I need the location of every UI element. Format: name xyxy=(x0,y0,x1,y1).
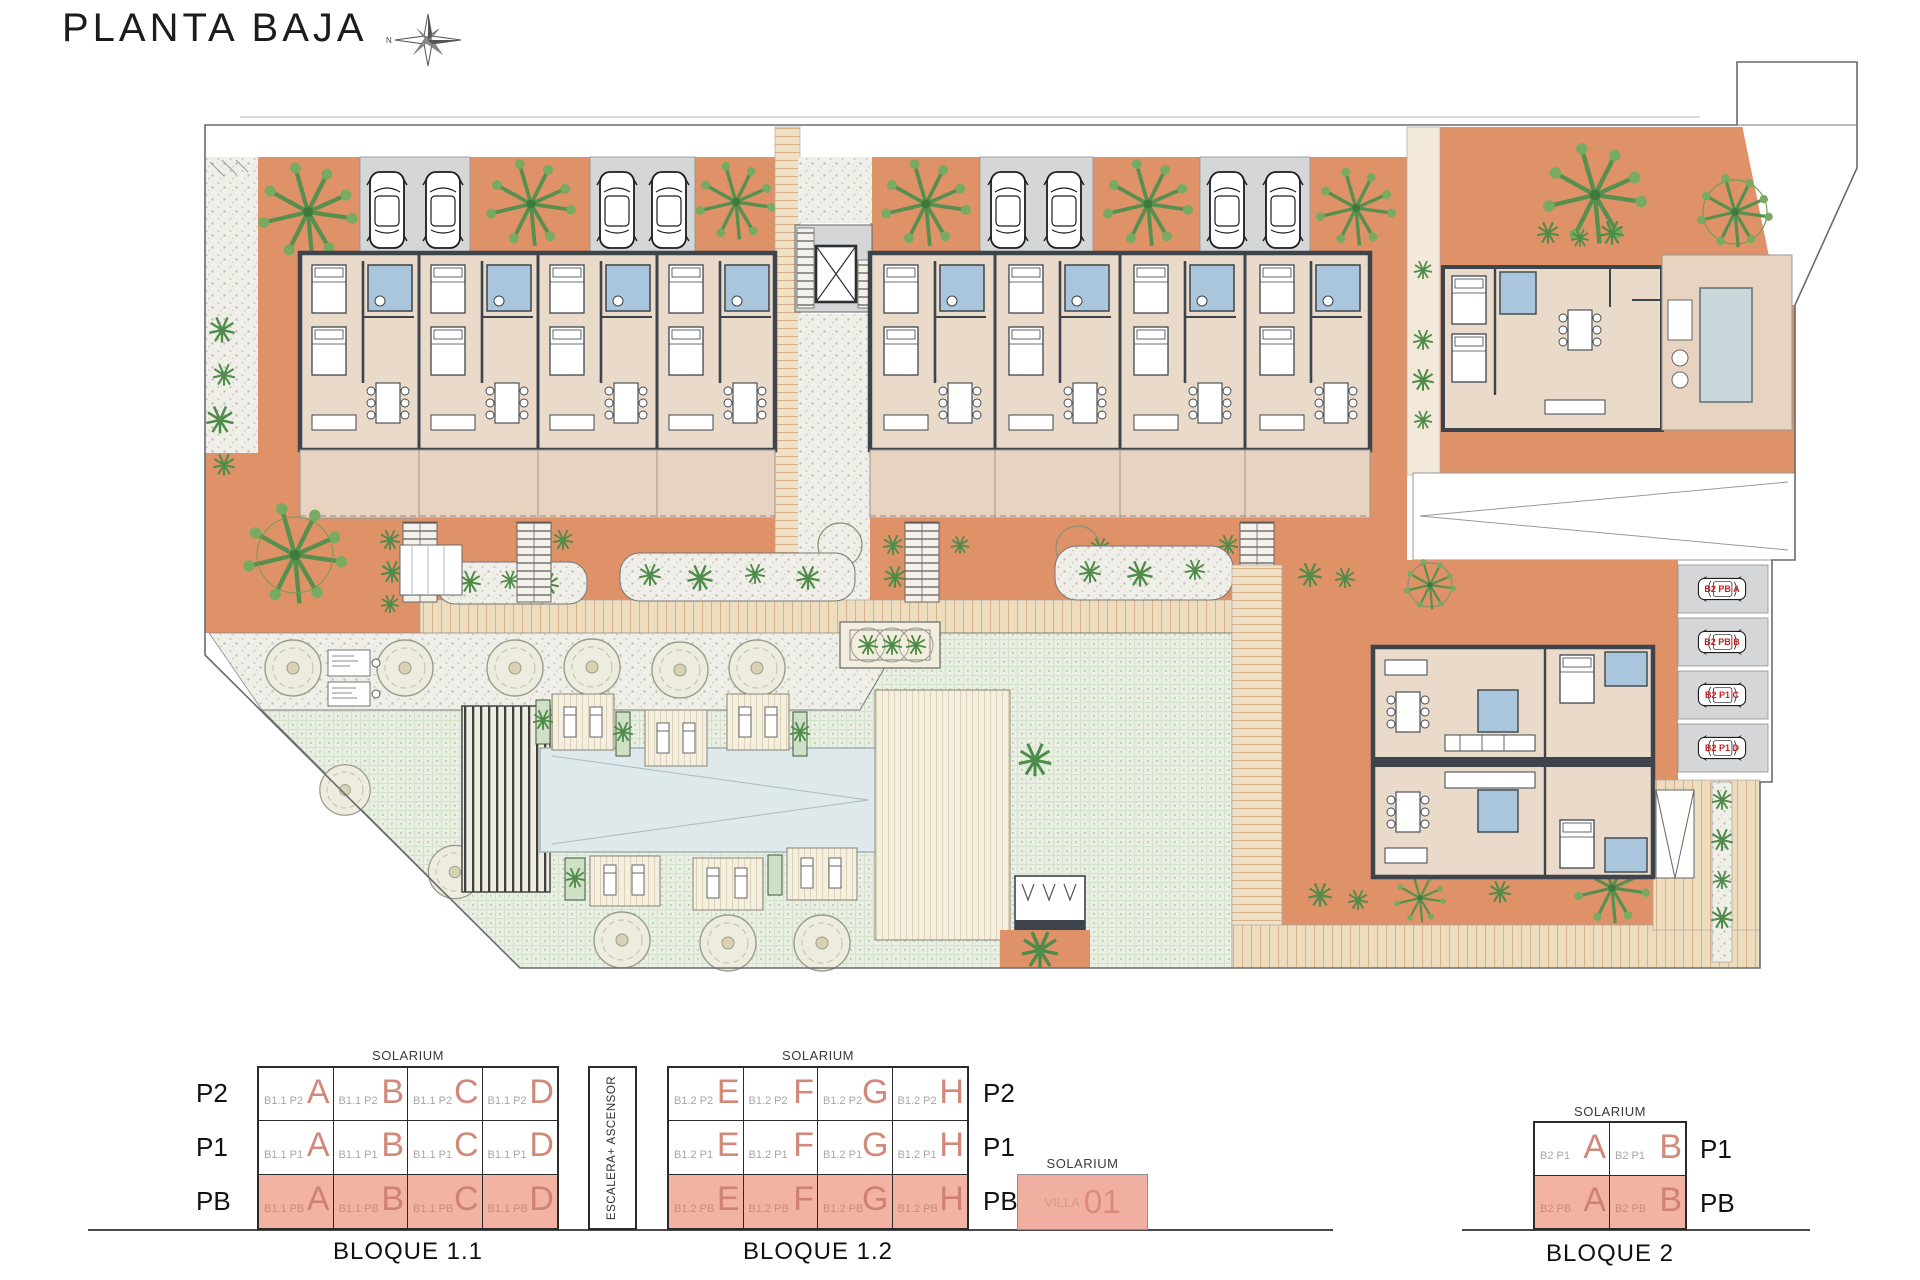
unit-cell-highlighted[interactable]: B2 PBA xyxy=(1535,1176,1610,1229)
bloque-2-unit-table: B2 P1A B2 P1B B2 PBA B2 PBB xyxy=(1533,1121,1687,1230)
floor-label-b2-pb: PB xyxy=(1700,1188,1735,1219)
unit-cell[interactable]: B1.2 P1F xyxy=(744,1121,819,1174)
unit-cell-highlighted[interactable]: B1.1 PBB xyxy=(334,1175,409,1228)
bloque-1-2-building xyxy=(870,253,1370,518)
villa-01-cell[interactable]: VILLA 01 xyxy=(1017,1174,1148,1230)
unit-cell[interactable]: B2 P1B xyxy=(1610,1123,1685,1176)
unit-cell[interactable]: B1.2 P2F xyxy=(744,1068,819,1121)
unit-cell-highlighted[interactable]: B1.2 PBH xyxy=(893,1175,967,1228)
pool-wc-hut xyxy=(1015,876,1085,938)
private-pool xyxy=(1700,288,1752,402)
unit-cell[interactable]: B1.1 P1C xyxy=(408,1121,483,1174)
solarium-label-b12: SOLARIUM xyxy=(667,1048,969,1063)
unit-cell[interactable]: B1.1 P1A xyxy=(259,1121,334,1174)
unit-cell[interactable]: B1.2 P2H xyxy=(893,1068,967,1121)
bloque-1-1-label: BLOQUE 1.1 xyxy=(257,1238,559,1266)
fountain-planter xyxy=(840,622,940,668)
floor-label-b11-p1: P1 xyxy=(196,1132,228,1163)
villa-number: 01 xyxy=(1084,1183,1121,1221)
pool xyxy=(540,748,895,852)
bloque-1-2-unit-table: B1.2 P2E B1.2 P2F B1.2 P2G B1.2 P2H B1.2… xyxy=(667,1066,969,1230)
floor-label-b12-p1: P1 xyxy=(983,1132,1015,1163)
stairs-elevator-box: ESCALERA+ ASCENSOR xyxy=(588,1066,637,1230)
floor-label-b12-p2: P2 xyxy=(983,1078,1015,1109)
page-title: PLANTA BAJA xyxy=(62,6,368,51)
parking-label: B2 P1 C xyxy=(1705,690,1740,700)
unit-cell-highlighted[interactable]: B1.1 PBD xyxy=(483,1175,557,1228)
unit-cell-highlighted[interactable]: B2 PBB xyxy=(1610,1176,1685,1229)
bloque-2-zone xyxy=(1407,62,1857,560)
unit-cell[interactable]: B1.1 P2A xyxy=(259,1068,334,1121)
unit-cell[interactable]: B1.2 P1H xyxy=(893,1121,967,1174)
parking-label: B2 PB B xyxy=(1704,637,1740,647)
compass-icon: N xyxy=(378,6,468,72)
driveway xyxy=(1413,473,1795,560)
unit-cell[interactable]: B1.1 P2B xyxy=(334,1068,409,1121)
floor-plan-page: B2 PB A B2 PB B B2 P1 C B2 P1 D PLANTA B… xyxy=(0,0,1920,1280)
unit-cell-highlighted[interactable]: B1.2 PBF xyxy=(744,1175,819,1228)
unit-cell[interactable]: B1.1 P1B xyxy=(334,1121,409,1174)
elevator-icon xyxy=(816,246,856,302)
svg-text:N: N xyxy=(386,36,392,45)
unit-cell[interactable]: B1.2 P1E xyxy=(669,1121,744,1174)
unit-cell[interactable]: B1.1 P2D xyxy=(483,1068,557,1121)
unit-cell-highlighted[interactable]: B1.2 PBG xyxy=(818,1175,893,1228)
villa-building xyxy=(1373,647,1653,877)
solarium-label-villa: SOLARIUM xyxy=(1017,1156,1148,1171)
unit-cell[interactable]: B1.1 P1D xyxy=(483,1121,557,1174)
floor-label-b12-pb: PB xyxy=(983,1186,1018,1217)
solarium-label-b2: SOLARIUM xyxy=(1533,1104,1687,1119)
bloque-1-1-unit-table: B1.1 P2A B1.1 P2B B1.1 P2C B1.1 P2D B1.1… xyxy=(257,1066,559,1230)
stairs-elevator-label: ESCALERA+ ASCENSOR xyxy=(607,1076,619,1220)
villa-code: VILLA xyxy=(1044,1195,1079,1210)
unit-cell-highlighted[interactable]: B1.1 PBC xyxy=(408,1175,483,1228)
floor-label-b11-pb: PB xyxy=(196,1186,231,1217)
bloque-1-1-building xyxy=(300,253,775,518)
parking-label: B2 P1 D xyxy=(1705,743,1740,753)
bloque-1-2-label: BLOQUE 1.2 xyxy=(667,1238,969,1266)
unit-cell[interactable]: B1.1 P2C xyxy=(408,1068,483,1121)
floor-label-b11-p2: P2 xyxy=(196,1078,228,1109)
bloque-2-building xyxy=(1443,267,1662,430)
unit-cell[interactable]: B1.2 P1G xyxy=(818,1121,893,1174)
parking-label: B2 PB A xyxy=(1704,584,1740,594)
unit-cell[interactable]: B1.2 P2G xyxy=(818,1068,893,1121)
villa-zone: B2 PB A B2 PB B B2 P1 C B2 P1 D xyxy=(1232,559,1768,968)
unit-cell-highlighted[interactable]: B1.2 PBE xyxy=(669,1175,744,1228)
unit-cell[interactable]: B1.2 P2E xyxy=(669,1068,744,1121)
floor-label-b2-p1: P1 xyxy=(1700,1134,1732,1165)
bloque-2-label: BLOQUE 2 xyxy=(1533,1240,1687,1268)
unit-cell-highlighted[interactable]: B1.1 PBA xyxy=(259,1175,334,1228)
solarium-label-b11: SOLARIUM xyxy=(257,1048,559,1063)
unit-cell[interactable]: B2 P1A xyxy=(1535,1123,1610,1176)
